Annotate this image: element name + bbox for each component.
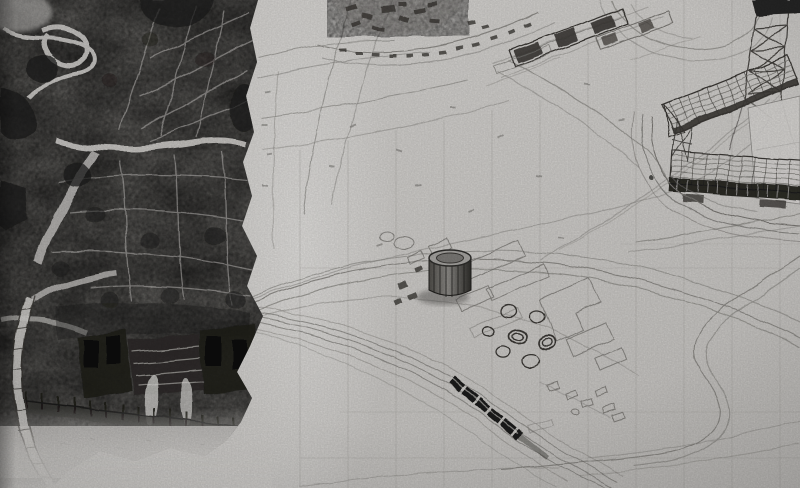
pencil-map-sketch (0, 0, 800, 488)
paper-grain (0, 0, 800, 488)
photo-of-pencil-map (0, 0, 800, 488)
